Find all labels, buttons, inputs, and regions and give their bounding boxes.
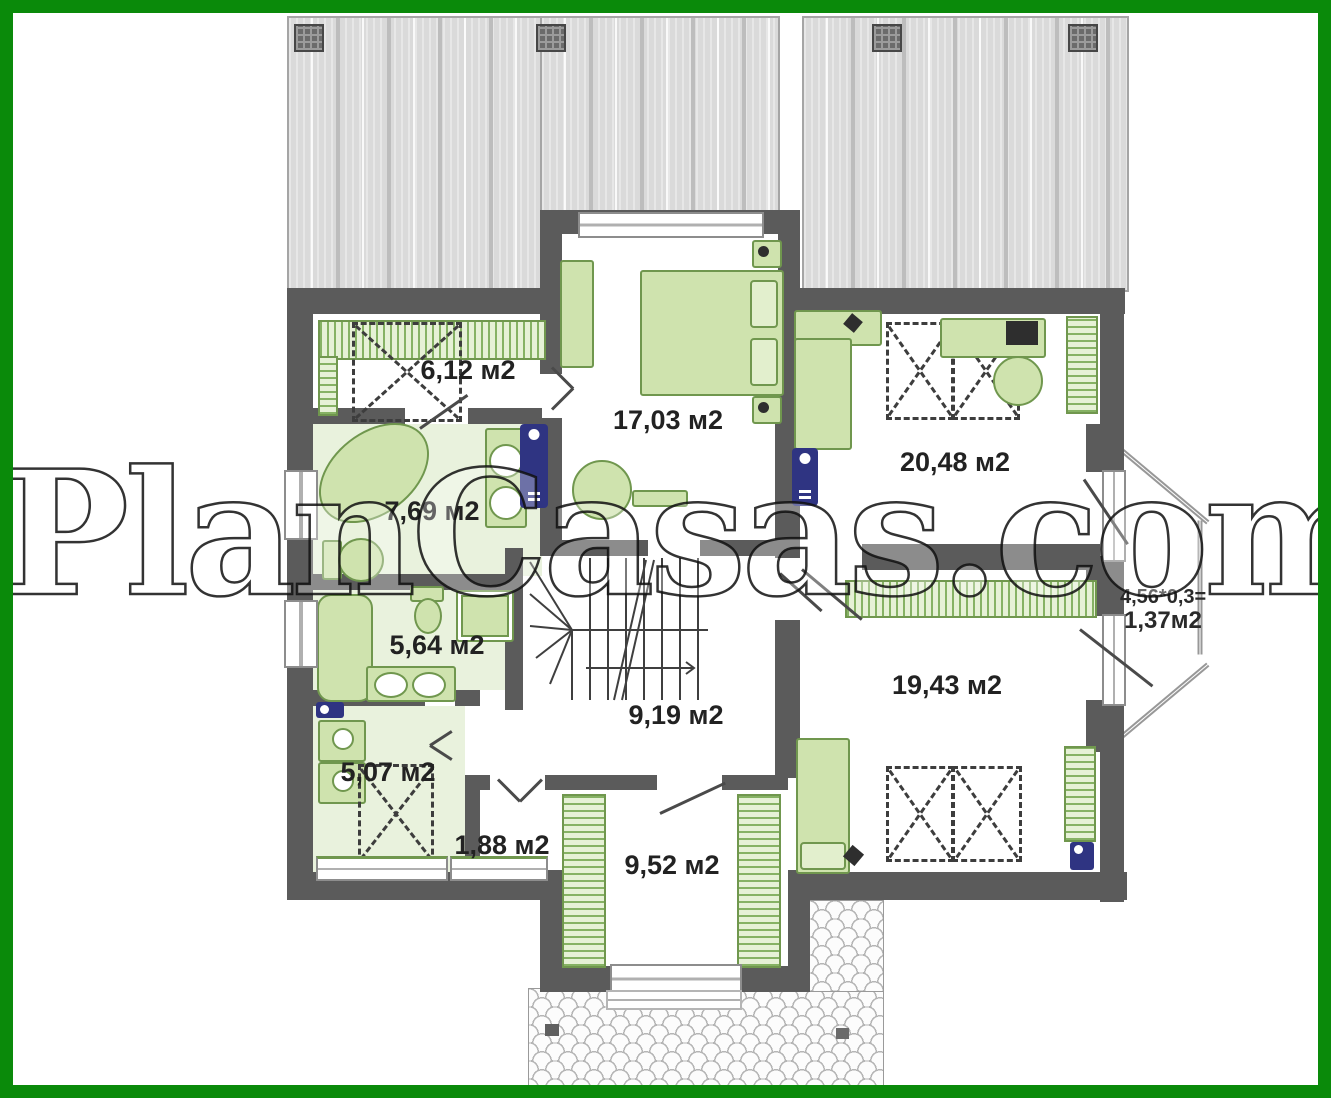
closet-strip [562,794,606,968]
partition [862,544,1100,570]
wardrobe-unit-dashed [952,766,1022,862]
partition [468,408,542,424]
wall-right-lower [1100,748,1124,902]
closet-strip [737,794,781,968]
radiator-small-icon [316,702,344,718]
pillow [750,338,778,386]
pillow [800,842,846,870]
toilet-bowl [414,598,442,634]
partition [455,690,480,706]
terrace-step [606,990,742,1010]
wall-bottom-right [788,872,1127,900]
chimney-icon [1068,24,1098,52]
bench [632,490,688,507]
room-area-label: 5,07 м2 [303,757,473,788]
balcony-area-label: 1,37м2 [1124,607,1202,635]
room-area-label: 1,88 м2 [417,830,587,861]
wall-right-upper [1100,288,1124,434]
door-leaf [779,572,823,612]
room-area-label: 9,19 м2 [591,700,761,731]
bay-post-top [1086,424,1124,472]
wall-left [287,288,313,900]
wardrobe-unit-dashed [886,766,954,862]
door-leaf [497,778,521,802]
dormer-wall-left [540,210,562,316]
sink [374,672,408,698]
builtin-wardrobe-band [845,580,1097,618]
staircase [528,556,710,702]
roof-left [287,16,544,292]
partition [722,775,788,790]
radiator-small-icon [1070,842,1094,870]
door-leaf [519,779,543,803]
pillow [750,280,778,328]
toilet-bowl [338,538,384,582]
balcony-railing [1120,449,1209,525]
shelf-unit [1066,316,1098,414]
partition [545,775,657,790]
floor-plan-canvas: 6,12 м2 17,03 м2 20,48 м2 7,69 м2 5,64 м… [0,0,1331,1098]
monitor-icon [1006,321,1038,345]
room-area-label: 19,43 м2 [862,670,1032,701]
room-area-label: 20,48 м2 [870,447,1040,478]
terrace-drain [545,1024,559,1036]
radiator-icon [520,424,548,508]
shelf-unit [1064,746,1096,842]
partition [775,544,800,558]
single-bed [794,338,852,450]
room-area-label: 5,64 м2 [352,630,522,661]
chimney-icon [294,24,324,52]
roof-right [802,16,1129,292]
wardrobe-shelf-side [318,356,338,416]
chimney-icon [536,24,566,52]
room-area-label: 7,69 м2 [347,496,517,527]
bay-window-upper [1102,470,1126,562]
room-area-label: 17,03 м2 [583,405,753,436]
bay-post-bottom [1086,700,1124,752]
wall-top-left [287,288,542,314]
room-area-label: 6,12 м2 [383,355,553,386]
terrace-drain [836,1028,849,1039]
lamp-icon [758,402,769,413]
round-table [572,460,632,520]
wardrobe-tall [560,260,594,368]
washer-door [332,728,354,750]
balcony-area-calc: 4,56*0,3= [1120,586,1206,609]
roof-left-upper [540,16,780,214]
terrace-paving-side [808,900,884,992]
chimney-icon [872,24,902,52]
window-left-lower [284,600,318,668]
radiator-icon [792,448,818,506]
dormer-window [578,212,764,238]
room-area-label: 9,52 м2 [587,850,757,881]
window-left-upper [284,470,318,540]
chair [993,356,1043,406]
sink [489,444,523,478]
partition [540,540,648,556]
lamp-icon [758,246,769,257]
sink [412,672,446,698]
